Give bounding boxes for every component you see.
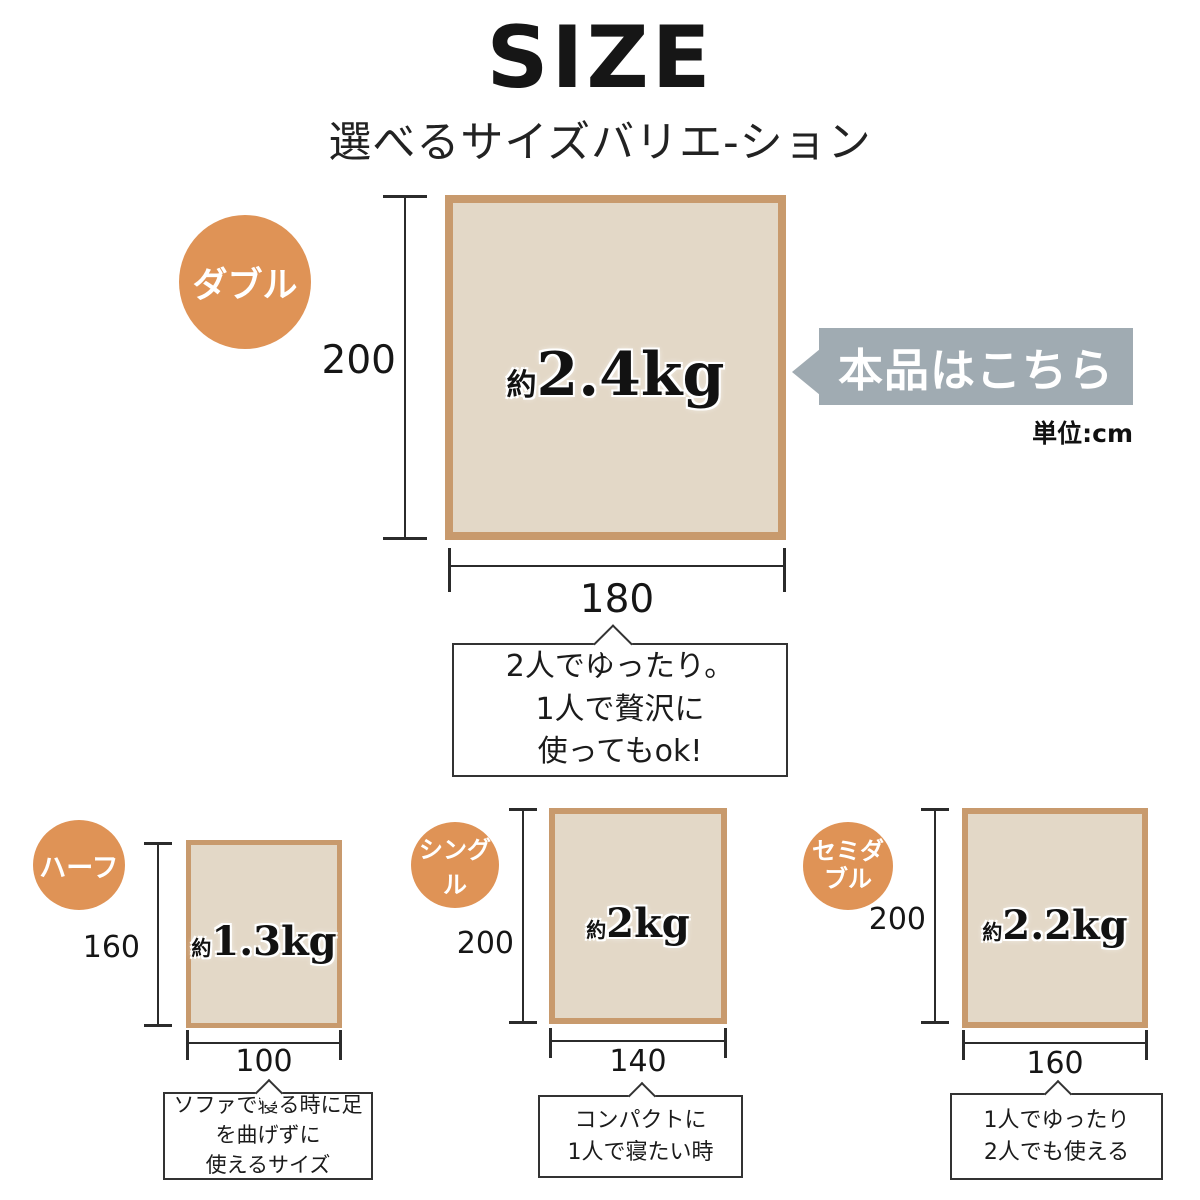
dimension-line: [404, 195, 406, 540]
size-note-half: ソファで寝る時に足 を曲げずに 使えるサイズ: [163, 1092, 373, 1180]
weight-value: 1.3kg: [211, 918, 336, 965]
dimension-line: [934, 808, 936, 1024]
weight-prefix: 約: [586, 918, 606, 942]
dimension-line: [522, 808, 524, 1024]
badge-half: ハーフ: [33, 820, 125, 910]
badge-single-label: シングル: [411, 830, 499, 900]
page-title: SIZE: [0, 8, 1200, 108]
badge-double-label: ダブル: [192, 257, 297, 308]
weight-half: 約1.3kg: [191, 904, 336, 965]
size-infographic: SIZE 選べるサイズバリエ-ション ダブル 200 約2.4kg 本品はこちら…: [0, 0, 1200, 1200]
note-line: 1人で贅沢に: [535, 689, 704, 732]
height-value-double: 200: [318, 338, 396, 383]
dimension-cap: [144, 1024, 172, 1027]
width-value-double: 180: [448, 577, 786, 622]
note-line: 使ってもok!: [538, 731, 703, 774]
dimension-line: [549, 1040, 727, 1042]
height-value-single: 200: [448, 926, 514, 961]
size-rect-half: 約1.3kg: [186, 840, 342, 1028]
weight-value: 2.4kg: [537, 340, 725, 410]
size-rect-semi-double: 約2.2kg: [962, 808, 1148, 1028]
size-note-semi-double: 1人でゆったり 2人でも使える: [950, 1093, 1163, 1180]
weight-single: 約2kg: [586, 886, 690, 947]
note-line: 1人で寝たい時: [568, 1137, 714, 1168]
dimension-cap: [383, 537, 427, 540]
badge-semi-double: セミダ ブル: [803, 822, 893, 910]
bubble-caret-icon: [1043, 1080, 1071, 1108]
note-line: コンパクトに: [574, 1105, 706, 1136]
size-rect-double: 約2.4kg: [445, 195, 786, 540]
weight-prefix: 約: [982, 920, 1002, 944]
dimension-cap: [921, 1021, 949, 1024]
width-value-half: 100: [186, 1044, 342, 1079]
callout-label: 本品はこちら: [838, 334, 1114, 399]
width-value-single: 140: [549, 1044, 727, 1079]
dimension-line: [448, 565, 786, 567]
height-value-half: 160: [74, 930, 140, 965]
dimension-cap: [509, 1021, 537, 1024]
note-line: 1人でゆったり: [984, 1105, 1130, 1136]
badge-single: シングル: [411, 822, 499, 908]
note-line: を曲げずに: [216, 1121, 321, 1151]
badge-half-label: ハーフ: [39, 846, 118, 885]
weight-semi-double: 約2.2kg: [982, 888, 1127, 949]
badge-double: ダブル: [179, 215, 311, 349]
size-note-single: コンパクトに 1人で寝たい時: [538, 1095, 743, 1178]
unit-note: 単位:cm: [950, 414, 1133, 450]
page-subtitle: 選べるサイズバリエ-ション: [0, 108, 1200, 170]
dimension-line: [157, 842, 159, 1027]
height-value-semi-double: 200: [860, 902, 926, 937]
weight-prefix: 約: [191, 936, 211, 960]
height-dimension-half: [144, 842, 172, 1027]
callout-this-product: 本品はこちら: [819, 328, 1133, 405]
note-line: 使えるサイズ: [206, 1151, 331, 1181]
width-value-semi-double: 160: [962, 1046, 1148, 1081]
badge-semi-double-label-line1: セミダ: [812, 838, 884, 866]
note-line: 2人でも使える: [984, 1137, 1129, 1168]
badge-semi-double-label-line2: ブル: [824, 866, 872, 894]
height-dimension-single: [509, 808, 537, 1024]
weight-double: 約2.4kg: [507, 326, 725, 410]
weight-prefix: 約: [507, 368, 537, 403]
size-rect-single: 約2kg: [549, 808, 727, 1024]
weight-value: 2.2kg: [1002, 902, 1127, 949]
size-note-double: 2人でゆったり。 1人で贅沢に 使ってもok!: [452, 643, 788, 777]
dimension-line: [962, 1042, 1148, 1044]
weight-value: 2kg: [606, 900, 690, 947]
callout-left-arrow-icon: [792, 349, 820, 395]
